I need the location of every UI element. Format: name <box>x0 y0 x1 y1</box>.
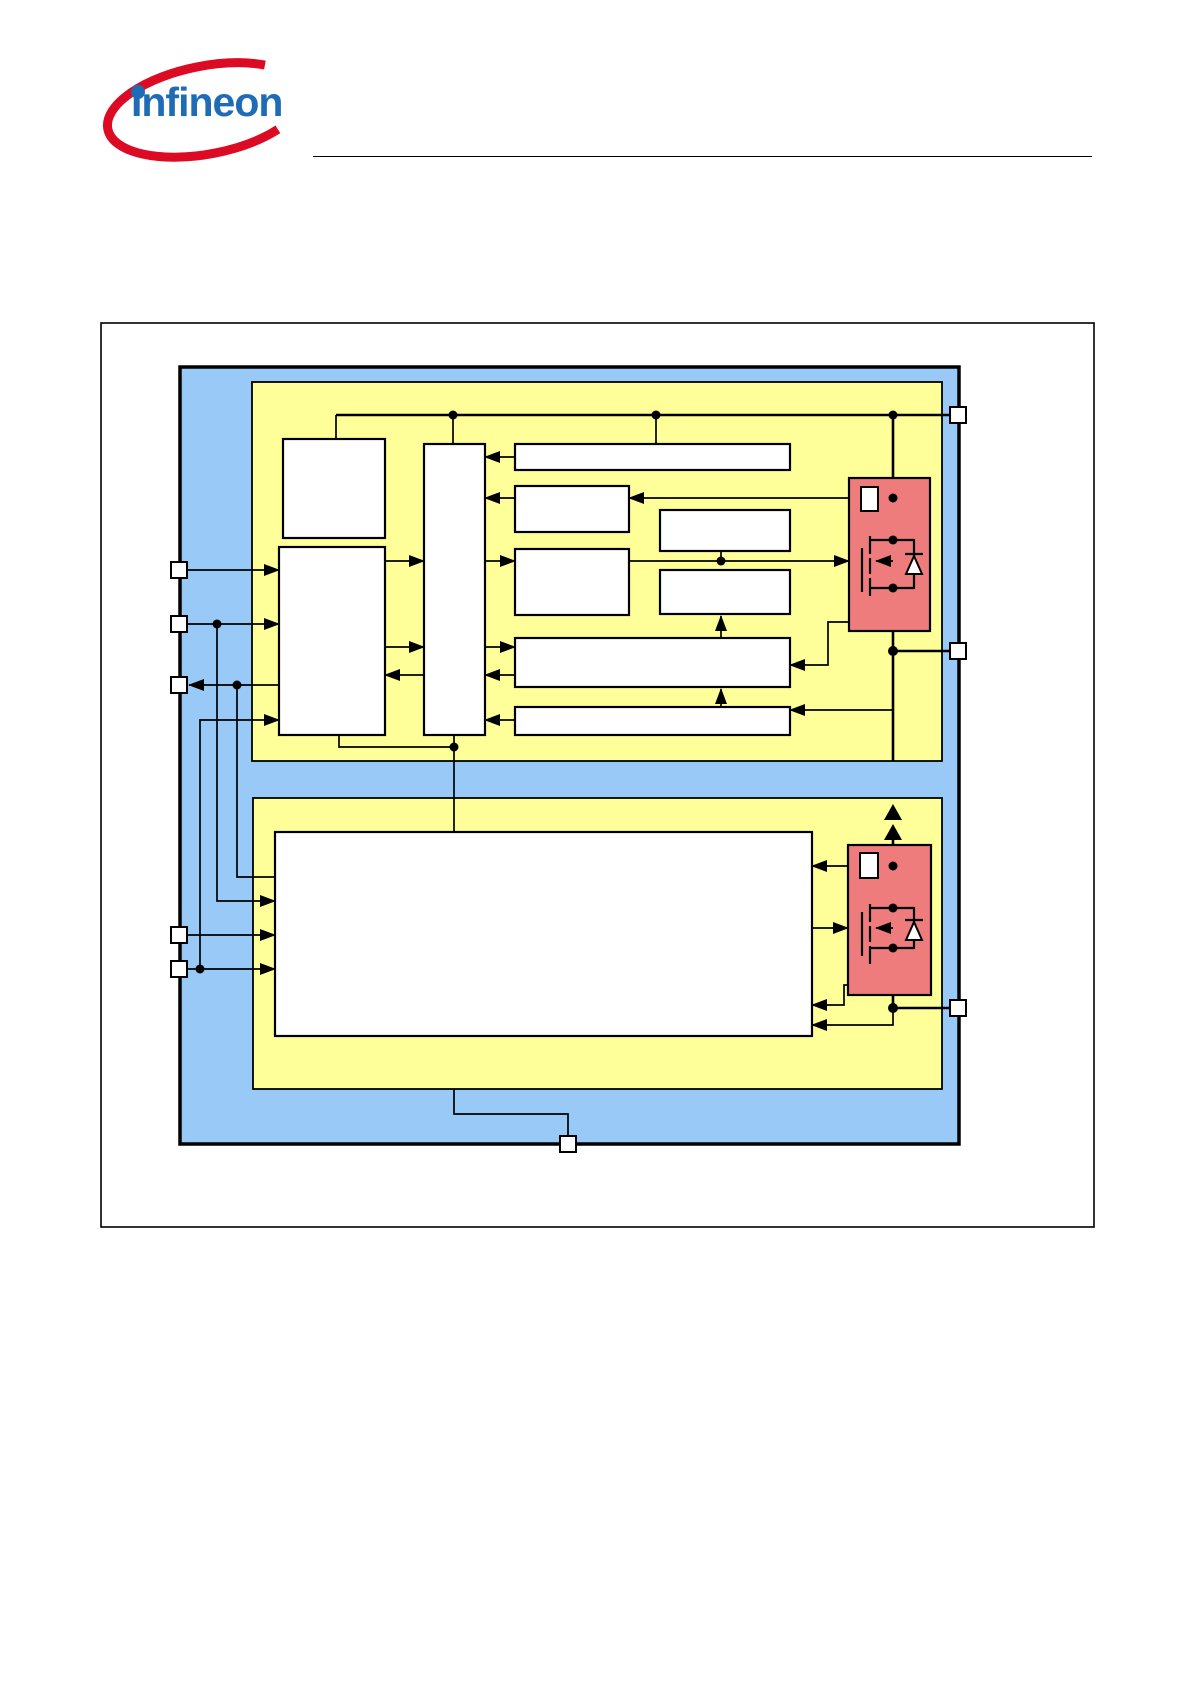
junction-dot <box>889 904 898 913</box>
upper-block-b <box>279 547 385 735</box>
lower-main-block <box>275 832 812 1036</box>
junction-dot <box>717 557 726 566</box>
junction-dot <box>889 536 898 545</box>
pin-right-3 <box>950 1000 966 1016</box>
upper-block-i <box>515 638 790 687</box>
junction-dot <box>213 620 222 629</box>
upper-block-d <box>515 444 790 470</box>
junction-dot <box>233 681 242 690</box>
block-diagram <box>0 0 1190 1684</box>
sense-resistor-icon <box>861 487 878 511</box>
datasheet-page: Infineon <box>0 0 1190 1684</box>
pin-left-4 <box>171 927 187 943</box>
junction-dot <box>652 411 661 420</box>
junction-dot <box>449 411 458 420</box>
pin-right-1 <box>950 407 966 423</box>
pin-bottom <box>560 1136 576 1152</box>
junction-dot <box>889 494 898 503</box>
upper-block-c <box>424 444 485 735</box>
upper-power-stage <box>849 478 930 631</box>
upper-block-h <box>660 570 790 614</box>
sense-resistor-icon <box>860 853 878 878</box>
junction-dot <box>450 743 459 752</box>
upper-block-f <box>515 549 629 615</box>
upper-block-j <box>515 707 790 735</box>
pin-left-2 <box>171 616 187 632</box>
junction-dot <box>888 1003 898 1013</box>
pin-left-3 <box>171 677 187 693</box>
junction-dot <box>889 411 898 420</box>
junction-dot <box>889 944 898 953</box>
junction-dot <box>889 862 898 871</box>
junction-dot <box>889 584 898 593</box>
upper-block-a <box>283 439 385 538</box>
junction-dot <box>888 646 898 656</box>
junction-dot <box>196 965 205 974</box>
pin-left-1 <box>171 562 187 578</box>
upper-block-g <box>660 510 790 551</box>
pin-right-2 <box>950 643 966 659</box>
pin-left-5 <box>171 961 187 977</box>
upper-block-e <box>515 486 629 532</box>
